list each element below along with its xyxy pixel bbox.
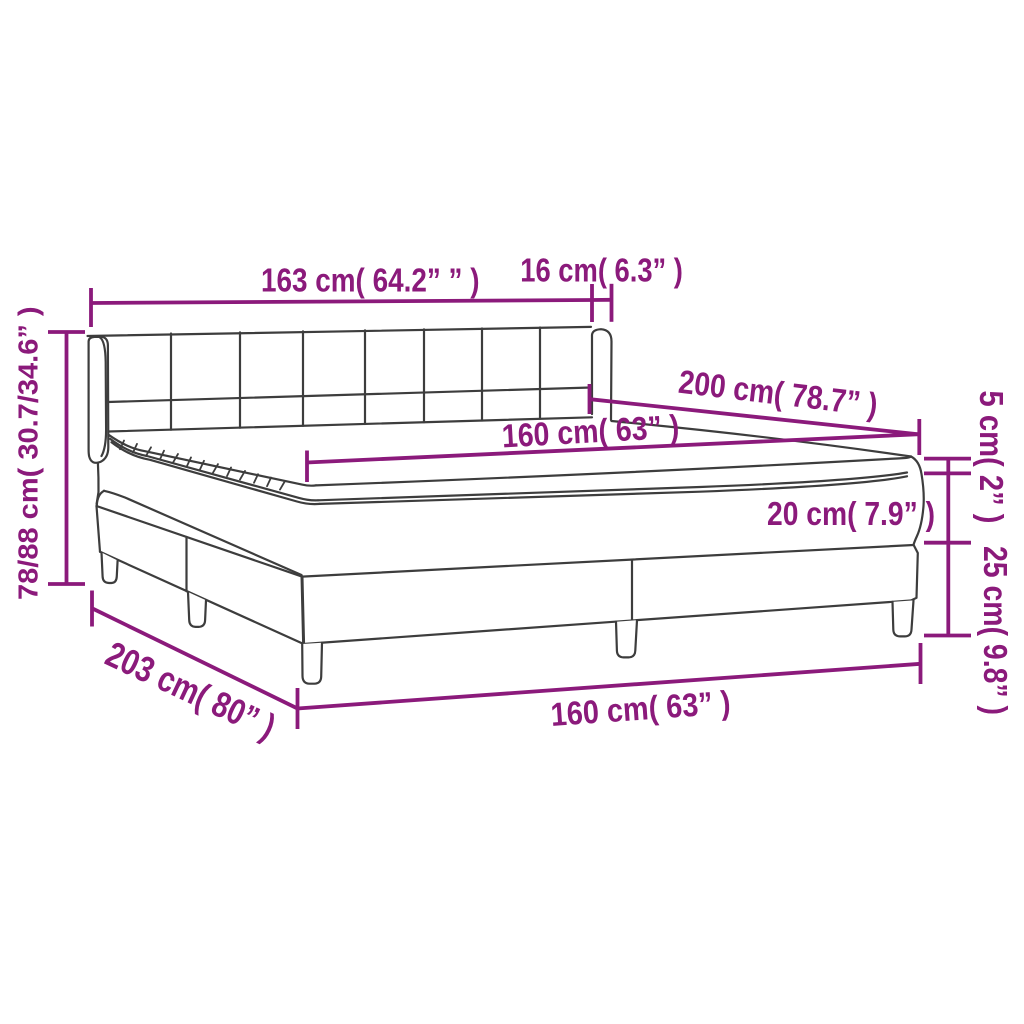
svg-text:20 cm( 7.9” ): 20 cm( 7.9” ) xyxy=(767,495,935,532)
svg-text:25 cm( 9.8” ): 25 cm( 9.8” ) xyxy=(977,546,1014,715)
svg-text:78/88 cm( 30.7/34.6” ): 78/88 cm( 30.7/34.6” ) xyxy=(13,306,44,600)
svg-text:5 cm( 2” ): 5 cm( 2” ) xyxy=(973,391,1010,524)
svg-text:16 cm( 6.3” ): 16 cm( 6.3” ) xyxy=(520,251,683,288)
svg-text:163 cm( 64.2” ” ): 163 cm( 64.2” ” ) xyxy=(261,262,480,299)
